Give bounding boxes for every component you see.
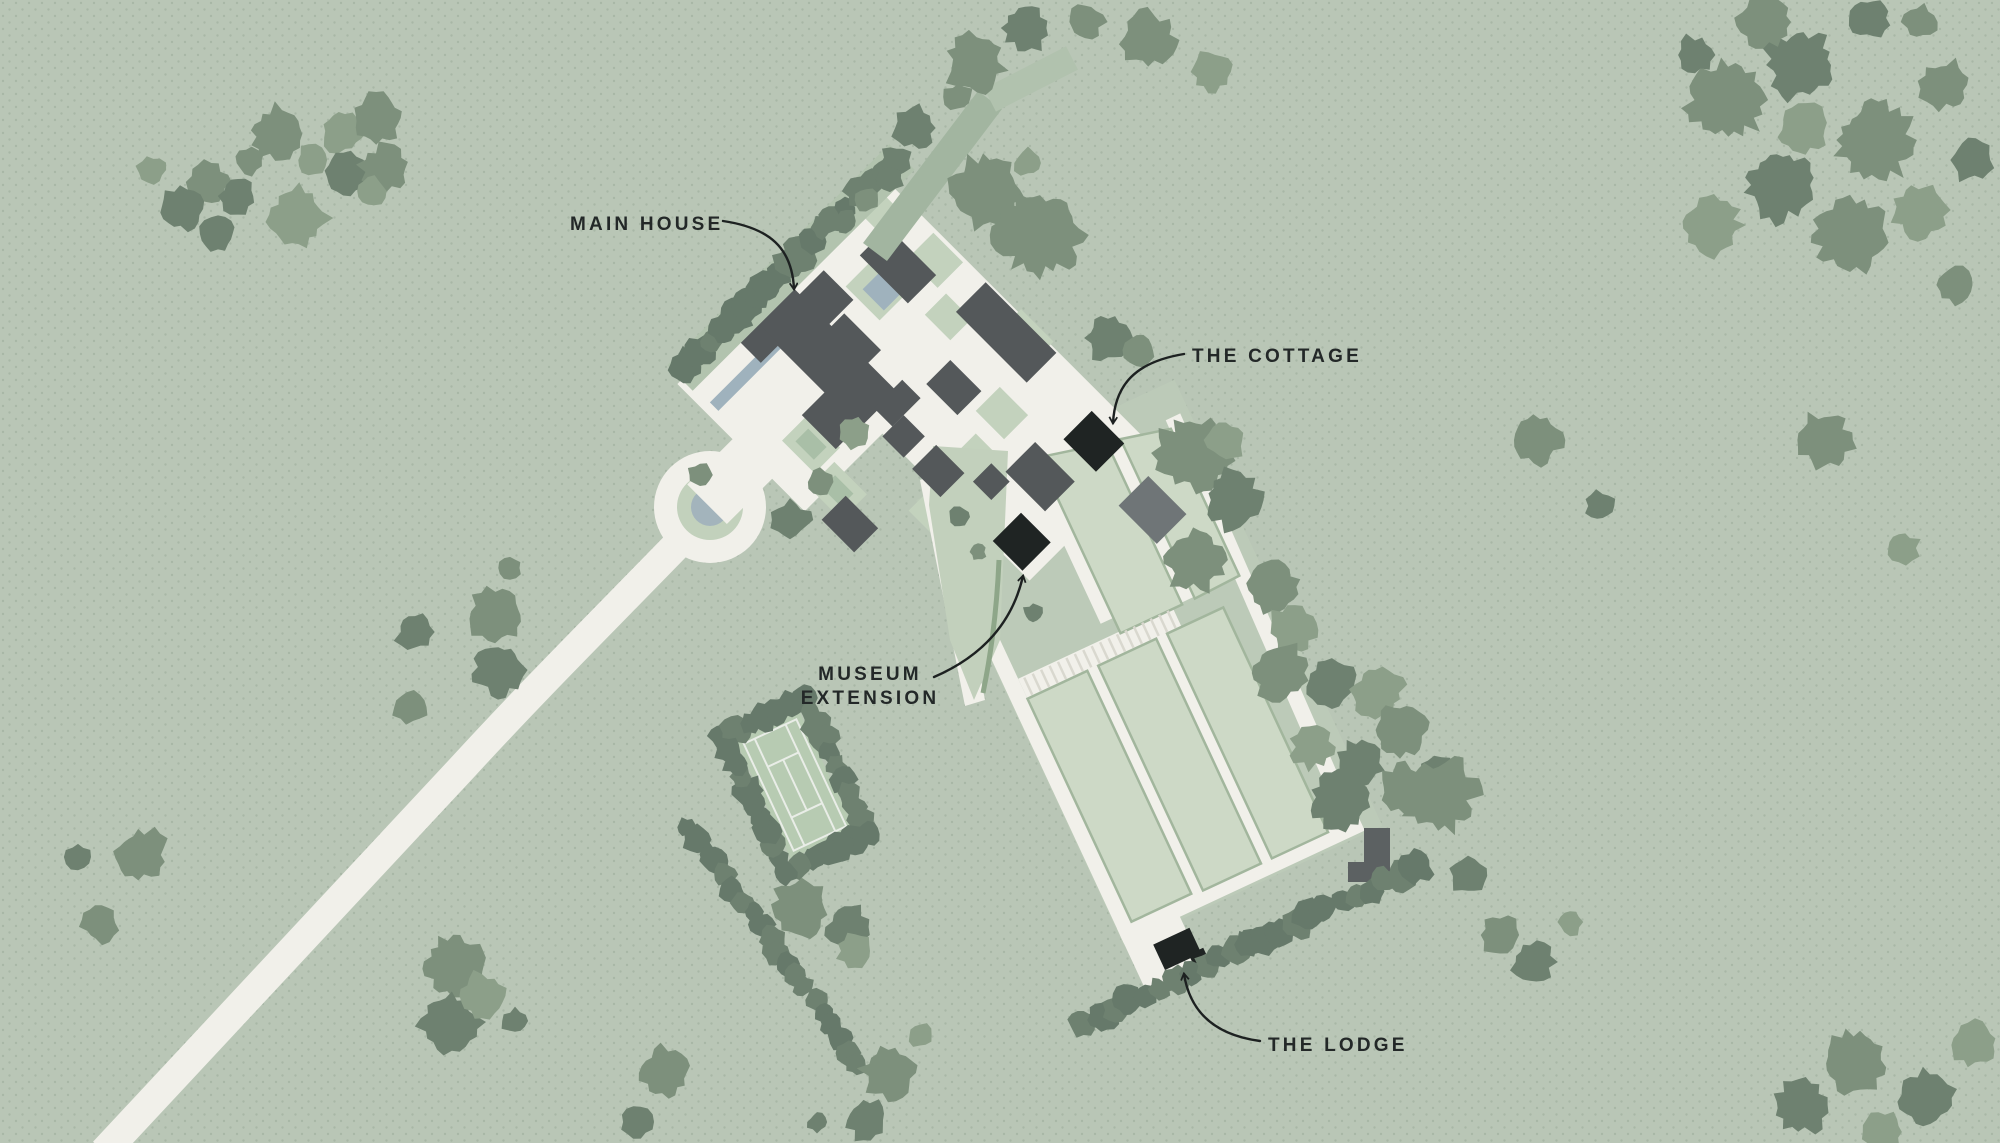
label-the-cottage: THE COTTAGE xyxy=(1192,346,1362,367)
label-main-house: MAIN HOUSE xyxy=(570,214,723,235)
label-museum-extension-line1: MUSEUM xyxy=(818,664,922,685)
tree xyxy=(470,586,521,643)
site-plan-page: MAIN HOUSE THE COTTAGE MUSEUM EXTENSION … xyxy=(0,0,2000,1143)
label-museum-extension-line2: EXTENSION xyxy=(801,688,940,709)
label-the-lodge: THE LODGE xyxy=(1268,1035,1408,1056)
site-plan-map: MAIN HOUSE THE COTTAGE MUSEUM EXTENSION … xyxy=(0,0,2000,1143)
